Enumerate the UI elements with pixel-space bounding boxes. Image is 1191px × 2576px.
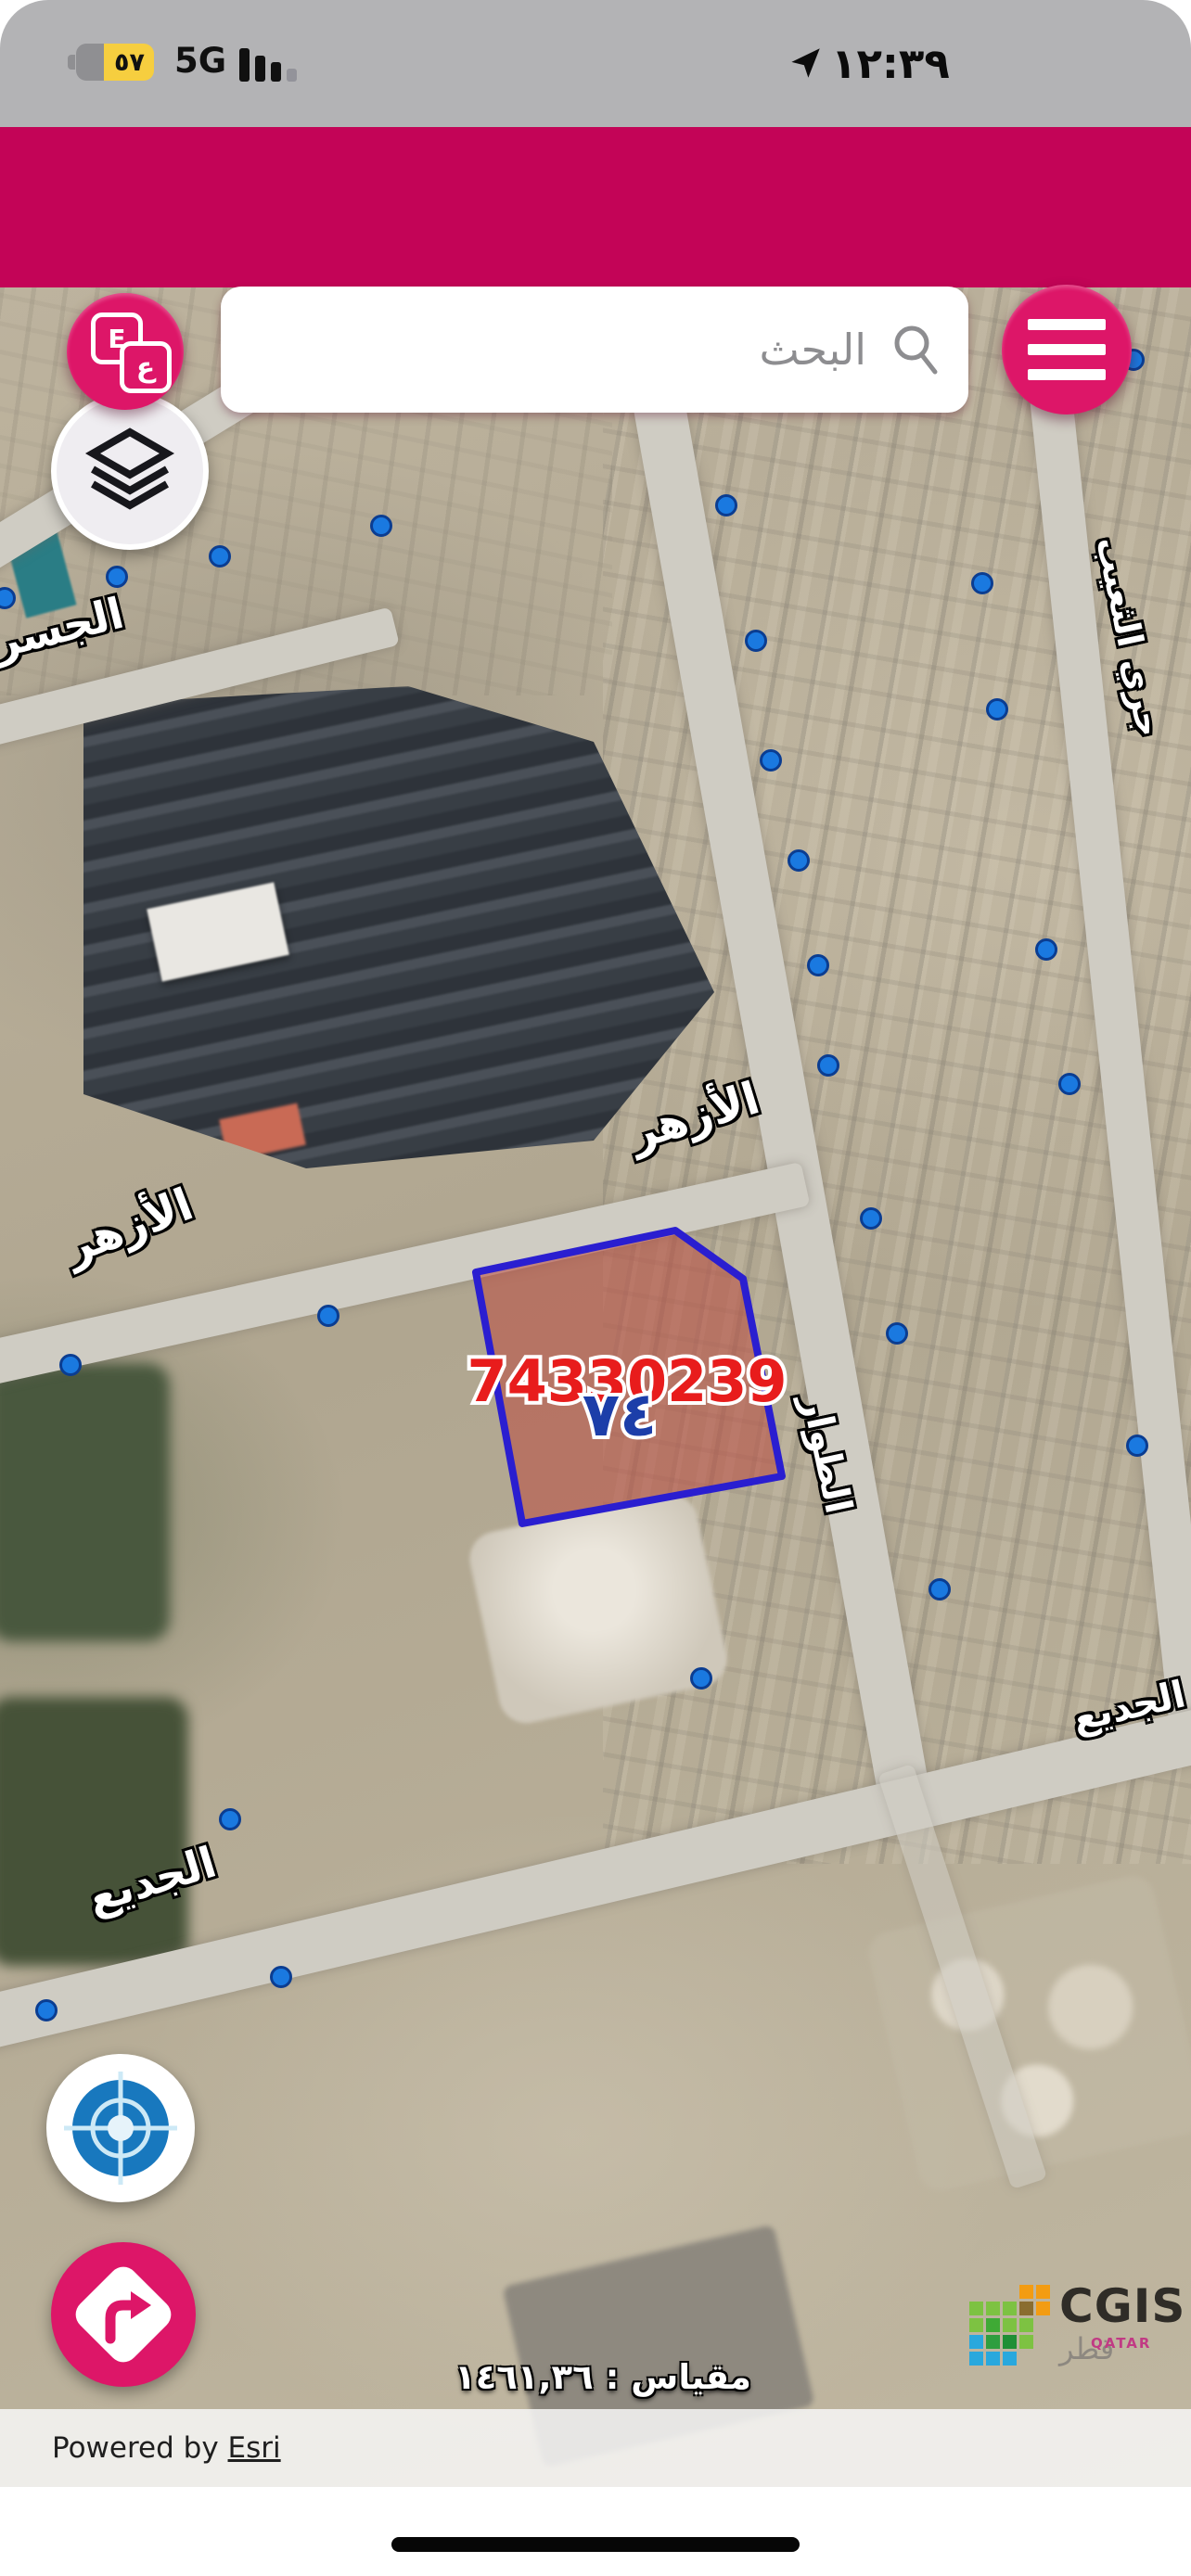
status-bar: ٥٧ 5G ١٢:٣٩: [0, 0, 1191, 127]
cgis-logo: CGIS قطر QATAR: [967, 2283, 1189, 2385]
map-marker[interactable]: [690, 1667, 712, 1690]
map-marker[interactable]: [1058, 1073, 1081, 1095]
map-marker[interactable]: [971, 572, 993, 594]
directions-button[interactable]: [51, 2242, 196, 2387]
map-marker[interactable]: [209, 545, 231, 567]
network-type-label: 5G: [174, 41, 226, 81]
map-marker[interactable]: [928, 1578, 951, 1600]
app-header: E ع: [0, 127, 1191, 287]
map-marker[interactable]: [817, 1054, 839, 1077]
map-marker[interactable]: [317, 1305, 339, 1327]
cgis-title: CGIS: [1059, 2279, 1185, 2333]
cgis-country-english: QATAR: [1091, 2335, 1151, 2352]
battery-percent-label: ٥٧: [114, 50, 154, 75]
hamburger-icon: [1028, 319, 1106, 330]
attribution-bar: Powered by Esri: [0, 2409, 1191, 2487]
map-marker[interactable]: [270, 1966, 292, 1988]
map-marker[interactable]: [0, 587, 16, 609]
bottom-safe-area: [0, 2487, 1191, 2576]
search-bar: [221, 287, 968, 413]
map-marker[interactable]: [760, 749, 782, 772]
map-marker[interactable]: [715, 494, 737, 516]
map-marker[interactable]: [860, 1207, 882, 1230]
menu-button[interactable]: [1002, 285, 1132, 414]
signal-bars-icon: [239, 46, 304, 82]
translate-icon: E ع: [67, 293, 184, 410]
crosshair-icon: [51, 2059, 190, 2198]
map-marker[interactable]: [106, 566, 128, 588]
search-icon: [889, 322, 944, 377]
cgis-logo-icon: [967, 2283, 1052, 2372]
map-marker[interactable]: [59, 1354, 82, 1376]
map-marker[interactable]: [219, 1808, 241, 1830]
phone-screen: ٥٧ 5G ١٢:٣٩ E ع: [0, 0, 1191, 2576]
map-marker[interactable]: [1126, 1435, 1148, 1457]
time-label: ١٢:٣٩: [831, 39, 950, 88]
esri-link[interactable]: Esri: [228, 2431, 281, 2465]
powered-by-text: Powered by: [52, 2431, 228, 2465]
map-marker[interactable]: [1035, 938, 1057, 961]
language-toggle-button[interactable]: E ع: [67, 293, 184, 410]
map-marker[interactable]: [745, 630, 767, 652]
map-canvas[interactable]: 74330239 ٧٤ الجسر جري الثعيب الأزهر الأز…: [0, 287, 1191, 2487]
map-marker[interactable]: [886, 1322, 908, 1345]
location-arrow-icon: [788, 46, 822, 80]
locate-button[interactable]: [46, 2054, 195, 2202]
layers-button[interactable]: [51, 392, 209, 550]
map-marker[interactable]: [370, 515, 392, 537]
map-marker[interactable]: [807, 954, 829, 976]
battery-tip: [68, 55, 75, 70]
map-marker[interactable]: [788, 849, 810, 872]
home-indicator[interactable]: [391, 2537, 800, 2552]
map-marker[interactable]: [986, 698, 1008, 721]
map-marker[interactable]: [35, 1999, 58, 2021]
directions-icon: [62, 2253, 185, 2376]
layers-icon: [82, 423, 178, 519]
search-input[interactable]: [221, 287, 968, 413]
battery-indicator: ٥٧: [74, 44, 160, 81]
scale-label: مقياس : ١٤٦١,٣٦: [455, 2357, 751, 2397]
